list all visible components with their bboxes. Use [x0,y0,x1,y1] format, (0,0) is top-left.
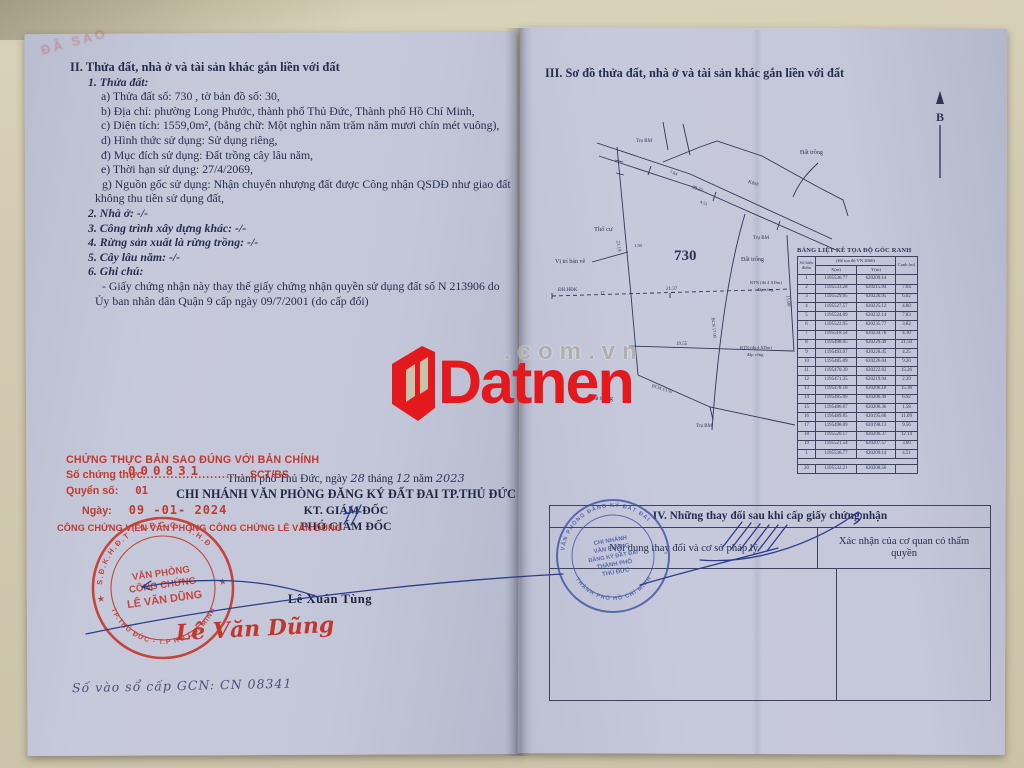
coord-cell-point: 4 [798,302,816,311]
coord-cell-y: 620220.95 [857,293,896,302]
coord-cell-point: 16 [798,413,816,422]
coord-cell-edge: 9.20 [896,358,918,367]
coord-cell-x: 1195521.54 [816,440,857,449]
coord-cell-point: 19 [798,440,816,449]
col-edge-header: Cạnh (m) [896,257,918,275]
coord-cell-point: 6 [798,321,816,330]
coord-row: 121195471.35620219.942.39 [798,376,918,385]
coord-cell-y: 620232.14 [857,312,896,321]
blue-registry-stamp: VĂN PHÒNG ĐĂNG KÝ ĐẤT ĐAI THÀNH PHỐ HỒ C… [543,486,682,625]
coord-row: 71195518.54620234.764.10 [798,330,918,339]
section3-heading: III. Sơ đồ thửa đất, nhà ở và tài sản kh… [545,66,844,81]
book-number: 01 [135,484,148,497]
coord-cell-x: 1195486.67 [816,404,857,413]
doc-line: g) Nguồn gốc sử dụng: Nhận chuyển nhượng… [95,177,516,206]
month-word: tháng [368,473,393,485]
coord-cell-point: 5 [798,312,816,321]
red-stamp-star-right: ★ [218,576,227,587]
coord-cell-edge: 4.25 [896,348,918,357]
coord-cell-edge: 9.56 [896,422,918,431]
coord-cell-x: 1195485.09 [816,394,857,403]
doc-line: d) Hình thức sử dụng: Sử dụng riêng, [101,133,516,148]
coord-row: 91195493.97620228.454.25 [798,348,918,357]
handwritten-day: 28 [350,471,365,485]
section2-block: II. Thửa đất, nhà ở và tài sản khác gắn … [70,60,516,308]
coord-cell-y: 620235.77 [857,321,896,330]
coord-row: 151195486.67620206.361.58 [798,404,918,413]
coord-row: 141195485.09620206.496.92 [798,394,918,403]
serial-number: 000831 [128,463,203,478]
coord-cell-x: 1195536.77 [816,449,857,458]
coord-cell-x: 1195518.54 [816,330,857,339]
coord-row: 201195532.21620208.56 [798,465,918,474]
date-label: Ngày: [82,505,112,517]
section2-heading: II. Thửa đất, nhà ở và tài sản khác gắn … [70,60,516,75]
coord-cell-point: 18 [798,431,816,440]
coord-cell-x: 1195489.85 [816,413,857,422]
doc-line: 2. Nhà ở: -/- [88,206,516,221]
section2-lines: 1. Thửa đất:a) Thửa đất số: 730 , tờ bản… [70,75,516,309]
doc-line: c) Diện tích: 1559,0m², (bằng chữ: Một n… [101,118,516,133]
coord-row: 131195478.18620206.1815.36 [798,385,918,394]
coord-row: 81195498.05620229.4921.50 [798,339,918,348]
doc-line: 1. Thửa đất: [88,75,516,90]
col-x-header: X(m) [816,266,857,275]
coord-cell-x: 1195520.17 [816,431,857,440]
coord-row: 21195533.28620215.947.64 [798,284,918,293]
year-word: năm [413,473,433,485]
coord-cell-y: 620206.49 [857,394,896,403]
red-stamp-star-left: ★ [96,593,105,604]
serial-suffix: SCT/BS [250,469,289,481]
north-arrow: B [924,83,956,183]
coord-cell-edge [896,275,918,284]
doc-line: 4. Rừng sản xuất là rừng trồng: -/- [88,235,516,250]
coord-cell-x: 1195498.05 [816,339,857,348]
coord-cell-edge: 6.02 [896,293,918,302]
doc-line: e) Thời hạn sử dụng: 27/4/2069, [101,162,516,177]
doc-line: - Giấy chứng nhận này thay thế giấy chứn… [95,279,516,308]
coord-cell-edge: 3.00 [896,440,918,449]
photo-background: ĐÃ SAO II. Thửa đất, nhà ở và tài sản kh… [0,0,1024,768]
coord-cell-point: 2 [798,284,816,293]
doc-line: 6. Ghi chú: [88,264,516,279]
coord-cell-edge: 12.14 [896,431,918,440]
doc-line: đ) Mục đích sử dụng: Đất trồng cây lâu n… [101,148,516,163]
coord-cell-y: 620195.66 [857,413,896,422]
col-y-header: Y(m) [857,266,896,275]
coord-cell-x: 1195529.95 [816,293,857,302]
certify-title: CHỨNG THỰC BẢN SAO ĐÚNG VỚI BẢN CHÍNH [66,454,342,466]
coord-row: 61195522.95620235.773.82 [798,321,918,330]
coord-cell-edge: 4.51 [896,449,918,458]
coord-cell-point: 1 [798,449,816,458]
coord-cell-point: 15 [798,404,816,413]
coord-cell-y: 620207.57 [857,440,896,449]
coord-cell-edge: 2.39 [896,376,918,385]
coord-row: 171195498.09620198.139.56 [798,422,918,431]
coord-cell-y: 620208.56 [857,465,896,474]
coord-cell-x: 1195493.97 [816,348,857,357]
coord-cell-point: 17 [798,422,816,431]
coord-row: 11195536.77620209.14 [798,275,918,284]
coord-row: 51195524.09620232.147.83 [798,312,918,321]
coord-cell-y: 620226.04 [857,358,896,367]
coord-cell-point: 13 [798,385,816,394]
coord-cell-edge: 11.09 [896,413,918,422]
coord-row: 181195520.17620206.3712.14 [798,431,918,440]
coord-cell-edge: 6.92 [896,394,918,403]
handwritten-year: 2023 [436,471,465,485]
coord-cell-edge: 7.83 [896,312,918,321]
coord-row: 111195470.39620222.8315.26 [798,367,918,376]
coord-cell-x: 1195522.95 [816,321,857,330]
signer-name: Lê Xuân Tùng [250,592,410,607]
coord-cell-y: 620222.83 [857,367,896,376]
coord-cell-point: 7 [798,330,816,339]
coordinate-table-block: BẢNG LIỆT KÊ TỌA ĐỘ GÓC RANH Số hiệu điể… [797,247,918,474]
coordinate-table-title: BẢNG LIỆT KÊ TỌA ĐỘ GÓC RANH [797,247,918,254]
coord-cell-x: 1195533.28 [816,284,857,293]
coord-row: 161195489.85620195.6611.09 [798,413,918,422]
section4-col2-header: Xác nhận của cơ quan có thẩm quyền [818,528,990,568]
coord-cell-x: 1195536.77 [816,275,857,284]
coord-cell-point: 9 [798,348,816,357]
coord-cell-point: 10 [798,358,816,367]
north-label: B [936,110,944,124]
coord-cell-x: 1195471.35 [816,376,857,385]
coord-cell-y: 620209.14 [857,275,896,284]
coord-cell-y: 620219.94 [857,376,896,385]
coord-cell-y: 620215.94 [857,284,896,293]
coord-cell-x: 1195498.09 [816,422,857,431]
coord-cell-y: 620206.37 [857,431,896,440]
coord-cell-y: 620209.14 [857,449,896,458]
doc-line: 5. Cây lâu năm: -/- [88,250,516,265]
coord-cell-edge: 4.80 [896,302,918,311]
coord-cell-x: 1195485.09 [816,358,857,367]
coord-cell-x: 1195470.39 [816,367,857,376]
doc-line: 3. Công trình xây dựng khác: -/- [88,221,516,236]
coord-cell-edge: 7.64 [896,284,918,293]
coord-cell-edge: 4.10 [896,330,918,339]
coord-cell-y: 620229.49 [857,339,896,348]
coord-cell-point: 3 [798,293,816,302]
coord-cell-point: 20 [798,465,816,474]
coord-cell-edge: 15.26 [896,367,918,376]
coord-cell-y: 620228.45 [857,348,896,357]
book-label: Quyển số: [66,485,118,497]
col-system-header: (Hệ tọa độ VN 2000) [816,257,896,266]
coord-row: 191195521.54620207.573.00 [798,440,918,449]
coord-cell-edge: 1.58 [896,404,918,413]
watermark-brand: Datnen [438,352,633,413]
coord-cell-y: 620198.13 [857,422,896,431]
coord-cell-y: 620206.18 [857,385,896,394]
col-point-header: Số hiệu điểm [798,257,816,275]
coord-cell-point: 1 [798,275,816,284]
coord-row: 31195529.95620220.956.02 [798,293,918,302]
coord-cell-y: 620206.36 [857,404,896,413]
coord-cell-point: 11 [798,367,816,376]
coord-cell-x: 1195527.57 [816,302,857,311]
certify-book: Quyển số: 01 [66,484,342,497]
coord-cell-point: 14 [798,394,816,403]
coord-row: 101195485.09620226.049.20 [798,358,918,367]
coord-cell-edge: 15.36 [896,385,918,394]
coord-cell-point: 12 [798,376,816,385]
coord-cell-x: 1195478.18 [816,385,857,394]
coord-row: 11195536.77620209.144.51 [798,449,918,458]
doc-line: b) Địa chỉ: phường Long Phước, thành phố… [101,104,516,119]
coord-row: 41195527.57620225.124.80 [798,302,918,311]
watermark-logo-icon [388,344,440,426]
handwritten-month: 12 [396,471,411,485]
doc-line: a) Thửa đất số: 730 , tờ bản đồ số: 30, [101,89,516,104]
red-notary-stamp: S.Đ.K.H.Đ.T · V.P.C.C · T.H.Đ TP.THỦ ĐỨC… [78,503,247,672]
certify-serial: Số chứng thực...........................… [66,469,342,481]
watermark: .com.vn Datnen [388,336,678,436]
coordinate-table: Số hiệu điểm (Hệ tọa độ VN 2000) Cạnh (m… [797,256,918,474]
coord-cell-edge [896,465,918,474]
coord-cell-edge: 21.50 [896,339,918,348]
coord-cell-x: 1195532.21 [816,465,857,474]
coord-cell-edge: 3.82 [896,321,918,330]
coord-cell-point: 8 [798,339,816,348]
coord-cell-y: 620225.12 [857,302,896,311]
coord-cell-x: 1195524.09 [816,312,857,321]
coord-cell-y: 620234.76 [857,330,896,339]
